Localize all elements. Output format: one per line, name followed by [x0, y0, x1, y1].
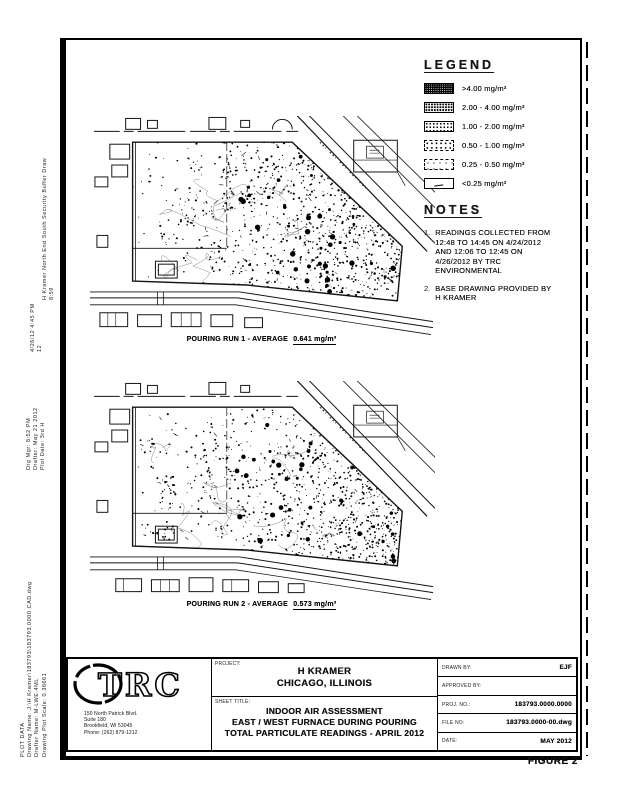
- field-label: FILE NO:: [442, 720, 464, 726]
- project-line: H KRAMER: [212, 666, 437, 678]
- title-block-field-row: DRAWN BY: EJF: [438, 659, 576, 677]
- caption-prefix: POURING RUN 2 - AVERAGE: [187, 601, 288, 608]
- sheet-title-label: SHEET TITLE:: [215, 699, 250, 705]
- stamp-line: 12: [37, 303, 44, 352]
- field-label: DRAWN BY:: [442, 665, 472, 671]
- margin-stamp-plot-data: PLOT DATADrawing Name: J:\H Kramer\18379…: [20, 581, 49, 757]
- title-block-middle: PROJECT: H KRAMER CHICAGO, ILLINOIS SHEE…: [212, 659, 438, 750]
- trc-address: 150 North Patrick Blvd. Suite 180 Brookf…: [84, 711, 207, 736]
- stamp-line: 4/26/12 4:45 PM: [30, 303, 37, 352]
- legend-item: 0.25 - 0.50 mg/m³: [424, 159, 578, 170]
- legend-swatch: [424, 140, 454, 151]
- legend-swatch: [424, 121, 454, 132]
- note-number: 2.: [424, 284, 430, 303]
- field-value: 183793.0000-00.dwg: [506, 719, 572, 726]
- stamp-line: Drafter: May 21 2012: [33, 407, 40, 470]
- trc-logo-icon: TRC: [72, 662, 200, 710]
- legend-range-label: 0.25 - 0.50 mg/m³: [462, 160, 525, 169]
- note-number: 1.: [424, 228, 430, 276]
- title-block: TRC 150 North Patrick Blvd. Suite 180 Br…: [66, 657, 578, 752]
- field-value: EJF: [559, 664, 572, 671]
- project-cell: PROJECT: H KRAMER CHICAGO, ILLINOIS: [212, 659, 437, 697]
- stamp-line: Drafter Name: M-LWE.4ML: [34, 581, 41, 757]
- field-value: 183793.0000.0000: [515, 701, 572, 708]
- note-item: 1. READINGS COLLECTED FROM 12:48 TO 14:4…: [424, 228, 580, 276]
- legend-range-label: 1.00 - 2.00 mg/m³: [462, 122, 525, 131]
- title-block-fields: DRAWN BY: EJF APPROVED BY: PROJ. NO.: 18…: [438, 659, 576, 750]
- legend-range-label: 0.50 - 1.00 mg/m³: [462, 141, 525, 150]
- note-item: 2. BASE DRAWING PROVIDED BY H KRAMER: [424, 284, 580, 303]
- pouring-run-1-map: [88, 116, 435, 337]
- legend-item: 2.00 - 4.00 mg/m³: [424, 102, 578, 113]
- legend-title: LEGEND: [424, 58, 578, 72]
- title-block-field-row: PROJ. NO.: 183793.0000.0000: [438, 696, 576, 714]
- project-lines: H KRAMER CHICAGO, ILLINOIS: [212, 666, 437, 689]
- stamp-line: PLOT DATA: [20, 581, 27, 757]
- title-block-logo-cell: TRC 150 North Patrick Blvd. Suite 180 Br…: [68, 659, 212, 750]
- legend-range-label: <0.25 mg/m³: [462, 179, 507, 188]
- field-label: APPROVED BY:: [442, 683, 481, 689]
- title-block-field-row: FILE NO: 183793.0000-00.dwg: [438, 714, 576, 732]
- note-text: BASE DRAWING PROVIDED BY H KRAMER: [435, 284, 557, 303]
- pouring-run-2-caption: POURING RUN 2 - AVERAGE 0.573 mg/m³: [88, 601, 435, 608]
- pouring-run-2-map-drawing: [88, 381, 435, 602]
- svg-text:TRC: TRC: [98, 666, 183, 704]
- legend-range-label: >4.00 mg/m³: [462, 84, 507, 93]
- figure-number: FIGURE 2: [428, 756, 578, 767]
- stamp-line: Drawing Plot Scale: 0.36661: [42, 581, 49, 757]
- pouring-run-2-map: [88, 381, 435, 602]
- margin-stamp-2: 4/26/12 4:45 PM12: [30, 303, 44, 352]
- caption-average-value: 0.641 mg/m³: [293, 336, 336, 345]
- legend-swatch: [424, 102, 454, 113]
- notes: NOTES 1. READINGS COLLECTED FROM 12:48 T…: [424, 203, 580, 311]
- notes-list: 1. READINGS COLLECTED FROM 12:48 TO 14:4…: [424, 228, 580, 303]
- stamp-line: Drg Mgr: 8:52 PM: [26, 407, 33, 470]
- trc-address-line: Phone: (262) 879-1212: [84, 730, 207, 736]
- stamp-line: 8:59: [49, 158, 56, 300]
- legend: LEGEND >4.00 mg/m³ 2.00 - 4.00 mg/m³ 1.0…: [424, 58, 578, 197]
- legend-swatch: [424, 178, 454, 189]
- stamp-line: Plot Date: 3rd H: [40, 407, 47, 470]
- caption-prefix: POURING RUN 1 - AVERAGE: [187, 336, 288, 343]
- notes-title: NOTES: [424, 203, 580, 217]
- title-block-field-row: APPROVED BY:: [438, 677, 576, 695]
- legend-item: <0.25 mg/m³: [424, 178, 578, 189]
- sheet-title-line: TOTAL PARTICULATE READINGS - APRIL 2012: [212, 728, 437, 739]
- legend-swatch: [424, 159, 454, 170]
- margin-stamp-1: H Kramer North End South Security Buffer…: [42, 158, 56, 300]
- note-text: READINGS COLLECTED FROM 12:48 TO 14:45 O…: [435, 228, 557, 276]
- sheet-right-trim-line: [586, 42, 588, 756]
- project-line: CHICAGO, ILLINOIS: [212, 678, 437, 690]
- legend-swatch: [424, 83, 454, 94]
- title-block-field-row: DATE: MAY 2012: [438, 733, 576, 750]
- stamp-line: Drawing Name: J:\H Kramer\183793\183793.…: [27, 581, 34, 757]
- legend-item: 0.50 - 1.00 mg/m³: [424, 140, 578, 151]
- sheet-title-lines: INDOOR AIR ASSESSMENT EAST / WEST FURNAC…: [212, 706, 437, 739]
- legend-rows: >4.00 mg/m³ 2.00 - 4.00 mg/m³ 1.00 - 2.0…: [424, 83, 578, 189]
- legend-item: >4.00 mg/m³: [424, 83, 578, 94]
- sheet-title-line: INDOOR AIR ASSESSMENT: [212, 706, 437, 717]
- caption-average-value: 0.573 mg/m³: [293, 601, 336, 610]
- field-label: PROJ. NO.:: [442, 702, 470, 708]
- sheet-title-cell: SHEET TITLE: INDOOR AIR ASSESSMENT EAST …: [212, 697, 437, 750]
- field-label: DATE:: [442, 738, 457, 744]
- sheet-title-line: EAST / WEST FURNACE DURING POURING: [212, 717, 437, 728]
- legend-item: 1.00 - 2.00 mg/m³: [424, 121, 578, 132]
- pouring-run-1-map-drawing: [88, 116, 435, 337]
- stamp-line: H Kramer North End South Security Buffer…: [42, 158, 49, 300]
- field-value: MAY 2012: [540, 738, 572, 745]
- pouring-run-1-caption: POURING RUN 1 - AVERAGE 0.641 mg/m³: [88, 336, 435, 343]
- margin-stamp-3: Drg Mgr: 8:52 PMDrafter: May 21 2012Plot…: [26, 407, 48, 470]
- legend-range-label: 2.00 - 4.00 mg/m³: [462, 103, 525, 112]
- project-label: PROJECT:: [215, 661, 241, 667]
